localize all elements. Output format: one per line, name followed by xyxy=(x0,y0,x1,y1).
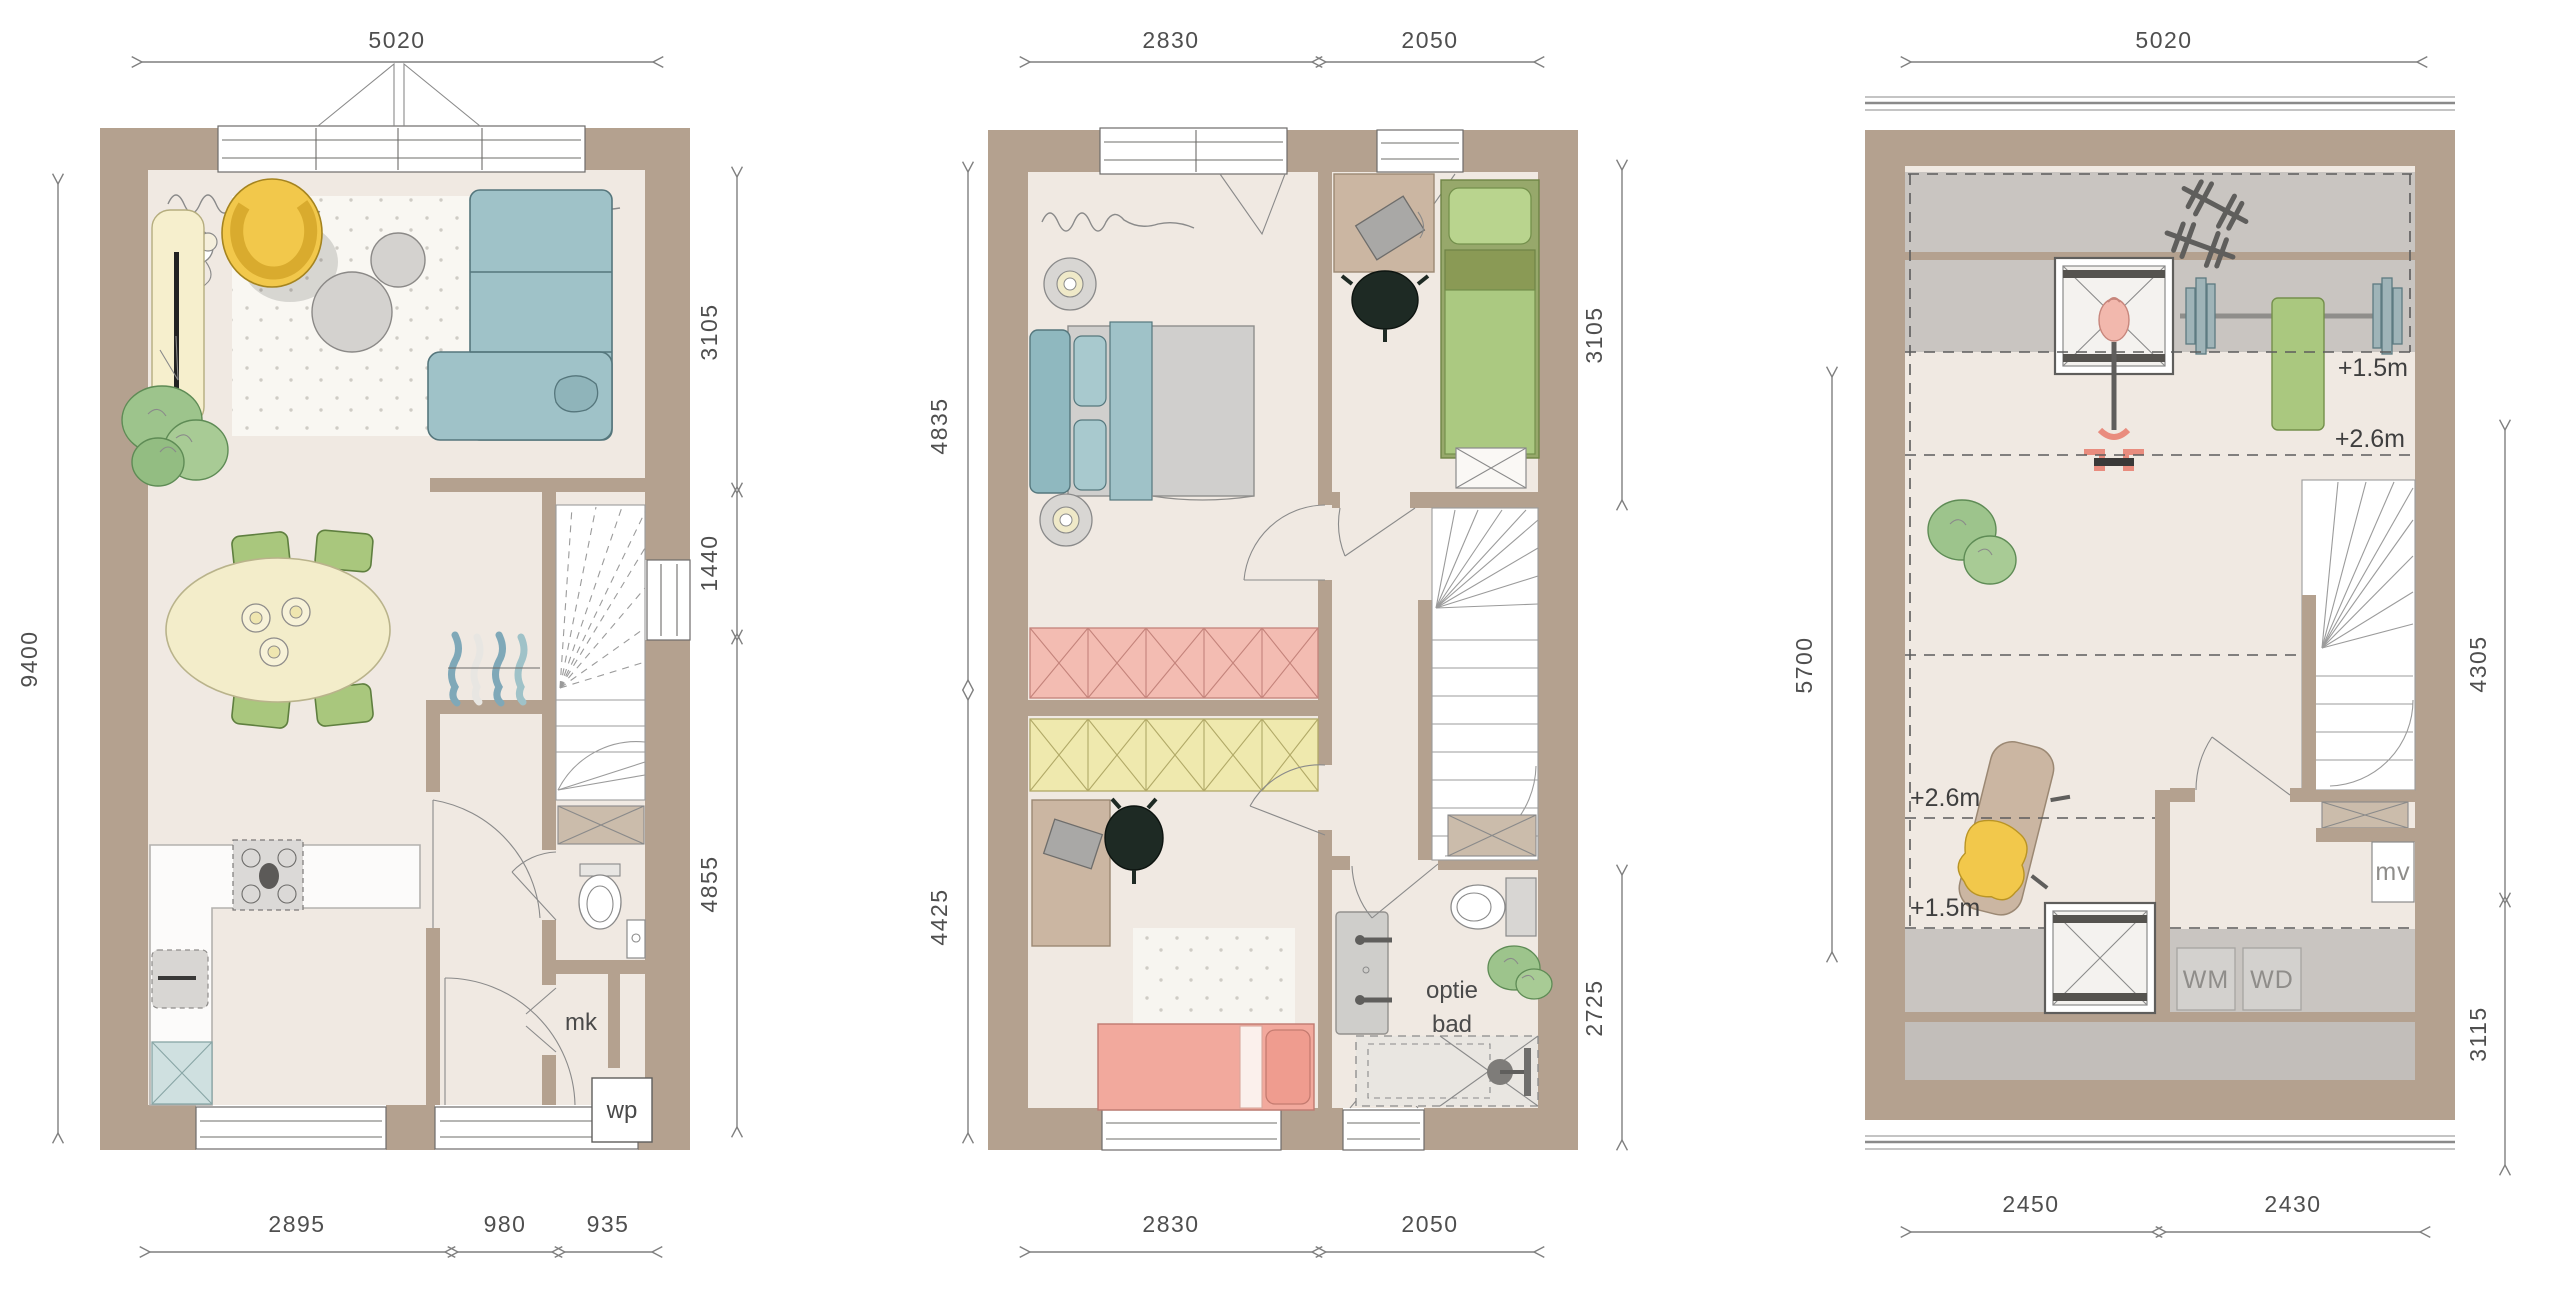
floorplan-drawing: mk wp 5020 9400 3105 1440 4855 2895 980 … xyxy=(0,0,2560,1296)
single-bed-green xyxy=(1441,180,1539,458)
toilet-tank xyxy=(580,864,620,876)
optional-bath-shower xyxy=(1356,1036,1538,1106)
dim-first-bottom-1: 2830 xyxy=(1142,1211,1199,1237)
attic-floor-plan: +1.5m +2.6m xyxy=(1791,27,2505,1232)
floorplan-sheet: mk wp 5020 9400 3105 1440 4855 2895 980 … xyxy=(0,0,2560,1296)
mk-label: mk xyxy=(565,1009,598,1036)
ground-side-window xyxy=(647,560,690,640)
purlin-beam-bottom xyxy=(1905,1012,2415,1022)
stairs-ground xyxy=(556,505,645,844)
hand-basin xyxy=(627,920,645,958)
wardrobe-yellow xyxy=(1030,719,1318,791)
vanity xyxy=(1336,912,1392,1034)
dim-first-right-1: 3105 xyxy=(1581,306,1607,363)
workout-bench xyxy=(2272,298,2324,430)
skylight-bottom xyxy=(2045,903,2155,1013)
kettlebell xyxy=(2099,299,2129,341)
stove xyxy=(233,840,303,910)
dim-attic-bottom-1: 2450 xyxy=(2002,1191,2059,1217)
bedside-lamp-1 xyxy=(1044,258,1096,310)
mechanical-ventilation-unit: mv xyxy=(2372,842,2414,902)
dining-table xyxy=(166,558,390,702)
dryer: WD xyxy=(2243,948,2301,1010)
stairs-attic xyxy=(2302,480,2415,842)
coffee-machine xyxy=(152,950,208,1008)
bedside-lamp-2 xyxy=(1040,494,1092,546)
toilet xyxy=(579,875,621,929)
dim-attic-left: 5700 xyxy=(1791,636,1817,693)
optie-bad-label-line2: bad xyxy=(1432,1011,1472,1038)
dim-ground-left: 9400 xyxy=(16,630,42,687)
side-table-large xyxy=(312,272,392,352)
french-door-swing xyxy=(318,64,480,126)
wardrobe-pink xyxy=(1030,628,1318,698)
dim-attic-bottom-2: 2430 xyxy=(2264,1191,2321,1217)
height-label-26-upper: +2.6m xyxy=(2335,425,2405,453)
dim-first-right-2: 2725 xyxy=(1581,979,1607,1036)
dim-first-top-1: 2830 xyxy=(1142,27,1199,53)
roof-edge-top xyxy=(1865,97,2455,110)
mv-label: mv xyxy=(2375,858,2410,886)
dim-first-top-2: 2050 xyxy=(1401,27,1458,53)
dim-ground-bottom-3: 935 xyxy=(587,1211,630,1237)
blanket-box xyxy=(1456,448,1526,488)
dim-first-left-2: 4425 xyxy=(926,888,952,945)
first-floor-plan: optie bad 2830 2050 4835 xyxy=(926,27,1622,1252)
ground-floor-plan: mk wp 5020 9400 3105 1440 4855 2895 980 … xyxy=(16,27,737,1252)
dim-ground-right-3: 4855 xyxy=(696,855,722,912)
wm-label: WM xyxy=(2183,966,2229,994)
washing-machine: WM xyxy=(2177,948,2235,1010)
ground-back-window xyxy=(196,1107,386,1149)
ground-front-window xyxy=(218,126,585,172)
dim-ground-top: 5020 xyxy=(368,27,425,53)
dim-attic-right-1: 4305 xyxy=(2465,635,2491,692)
stairs-first xyxy=(1432,508,1538,860)
eaves-strip-bottom xyxy=(1905,1022,2415,1080)
single-bed-pink xyxy=(1098,1024,1314,1110)
height-label-15-lower: +1.5m xyxy=(1910,894,1980,922)
wd-label: WD xyxy=(2250,966,2294,994)
optie-bad-label-line1: optie xyxy=(1426,977,1478,1004)
sink xyxy=(152,1042,212,1104)
wp-label: wp xyxy=(606,1097,638,1124)
dim-attic-right-2: 3115 xyxy=(2465,1006,2491,1061)
dim-first-left-1: 4835 xyxy=(926,397,952,454)
desk-bedroom2 xyxy=(1032,800,1110,946)
dim-ground-bottom-2: 980 xyxy=(484,1211,527,1237)
side-table-small xyxy=(371,233,425,287)
dim-first-bottom-2: 2050 xyxy=(1401,1211,1458,1237)
height-label-26-lower: +2.6m xyxy=(1910,784,1980,812)
dim-ground-bottom-1: 2895 xyxy=(268,1211,325,1237)
low-headroom-top xyxy=(1905,172,2415,252)
heat-pump: wp xyxy=(592,1078,652,1142)
height-label-15-upper: +1.5m xyxy=(2338,354,2408,382)
dim-ground-right-1: 3105 xyxy=(696,303,722,360)
roof-edge-bottom xyxy=(1865,1136,2455,1149)
double-bed xyxy=(1030,322,1254,500)
dim-ground-right-2: 1440 xyxy=(696,534,722,591)
dim-attic-top: 5020 xyxy=(2135,27,2192,53)
